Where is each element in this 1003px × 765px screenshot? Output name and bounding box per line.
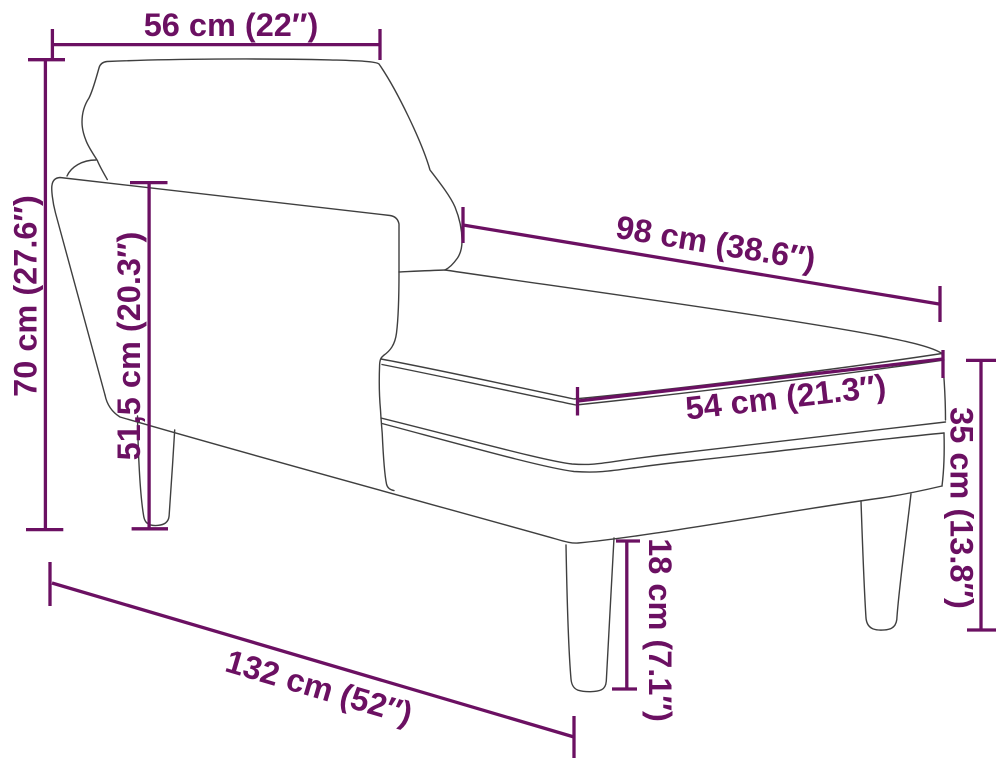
svg-text:70 cm (27.6″): 70 cm (27.6″) xyxy=(8,195,44,397)
svg-text:132 cm (52″): 132 cm (52″) xyxy=(222,643,417,732)
svg-text:18 cm (7.1″): 18 cm (7.1″) xyxy=(642,538,678,722)
svg-text:35 cm (13.8″): 35 cm (13.8″) xyxy=(943,407,979,609)
svg-text:56 cm (22″): 56 cm (22″) xyxy=(144,7,319,43)
svg-text:51,5 cm (20.3″): 51,5 cm (20.3″) xyxy=(111,232,147,461)
